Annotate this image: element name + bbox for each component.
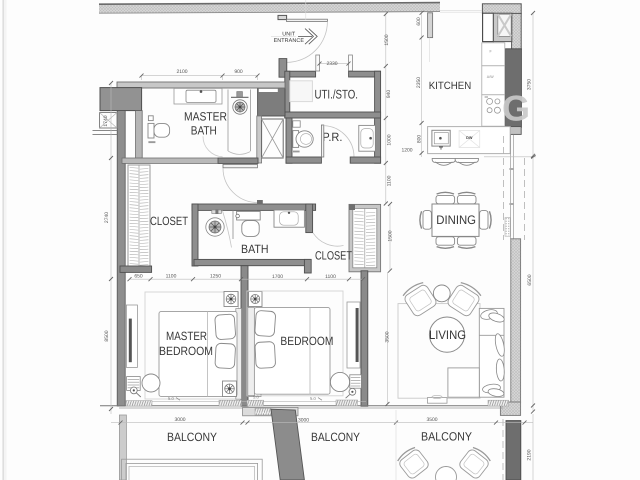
svg-text:BALCONY: BALCONY [311, 430, 360, 444]
svg-text:5.0: 5.0 [168, 396, 174, 401]
svg-text:2100: 2100 [176, 69, 187, 75]
svg-text:KITCHEN: KITCHEN [429, 80, 472, 92]
svg-text:1100: 1100 [387, 175, 393, 186]
svg-text:BATH: BATH [191, 124, 217, 138]
svg-text:1100: 1100 [166, 274, 177, 280]
svg-text:3500: 3500 [426, 417, 437, 423]
svg-text:P.R.: P.R. [322, 130, 342, 144]
svg-text:1100: 1100 [325, 274, 336, 280]
svg-text:3000: 3000 [298, 417, 309, 423]
svg-text:8500: 8500 [104, 330, 110, 341]
svg-text:BALCONY: BALCONY [167, 430, 217, 444]
svg-text:2330: 2330 [326, 61, 337, 67]
svg-text:LIVING: LIVING [429, 328, 466, 342]
svg-text:600: 600 [416, 17, 422, 26]
svg-text:CLOSET: CLOSET [315, 248, 353, 262]
svg-text:800: 800 [416, 135, 422, 144]
svg-text:5.0: 5.0 [253, 394, 259, 399]
svg-text:2350: 2350 [416, 77, 422, 88]
svg-text:MASTER: MASTER [184, 109, 227, 123]
svg-text:DINING: DINING [436, 213, 476, 227]
svg-text:3000: 3000 [174, 417, 185, 423]
svg-text:650: 650 [134, 274, 143, 280]
svg-text:1500: 1500 [384, 34, 390, 45]
svg-text:DW: DW [466, 136, 473, 140]
svg-text:G: G [502, 88, 530, 129]
svg-text:UTI./STO.: UTI./STO. [315, 88, 359, 102]
svg-text:940: 940 [386, 90, 392, 99]
svg-text:A/W: A/W [487, 75, 494, 79]
svg-text:6500: 6500 [527, 274, 533, 285]
svg-text:1000: 1000 [387, 134, 393, 145]
svg-text:CLOSET: CLOSET [150, 214, 189, 228]
svg-text:MASTER: MASTER [166, 329, 207, 343]
svg-text:1250: 1250 [210, 274, 221, 280]
svg-text:BEDROOM: BEDROOM [159, 344, 213, 358]
svg-text:ENTRANCE: ENTRANCE [274, 38, 305, 44]
svg-text:2740: 2740 [104, 212, 110, 223]
svg-text:1500: 1500 [388, 230, 394, 241]
svg-text:BALCONY: BALCONY [421, 430, 472, 444]
svg-text:1200: 1200 [401, 147, 412, 153]
svg-text:1700: 1700 [272, 274, 283, 280]
svg-text:5.0: 5.0 [310, 396, 316, 401]
svg-text:900: 900 [234, 69, 243, 75]
svg-text:BATH: BATH [241, 242, 269, 256]
svg-text:BEDROOM: BEDROOM [280, 334, 333, 348]
svg-text:2190: 2190 [527, 449, 533, 460]
svg-text:1740: 1740 [103, 115, 109, 126]
svg-text:3500: 3500 [385, 331, 391, 342]
